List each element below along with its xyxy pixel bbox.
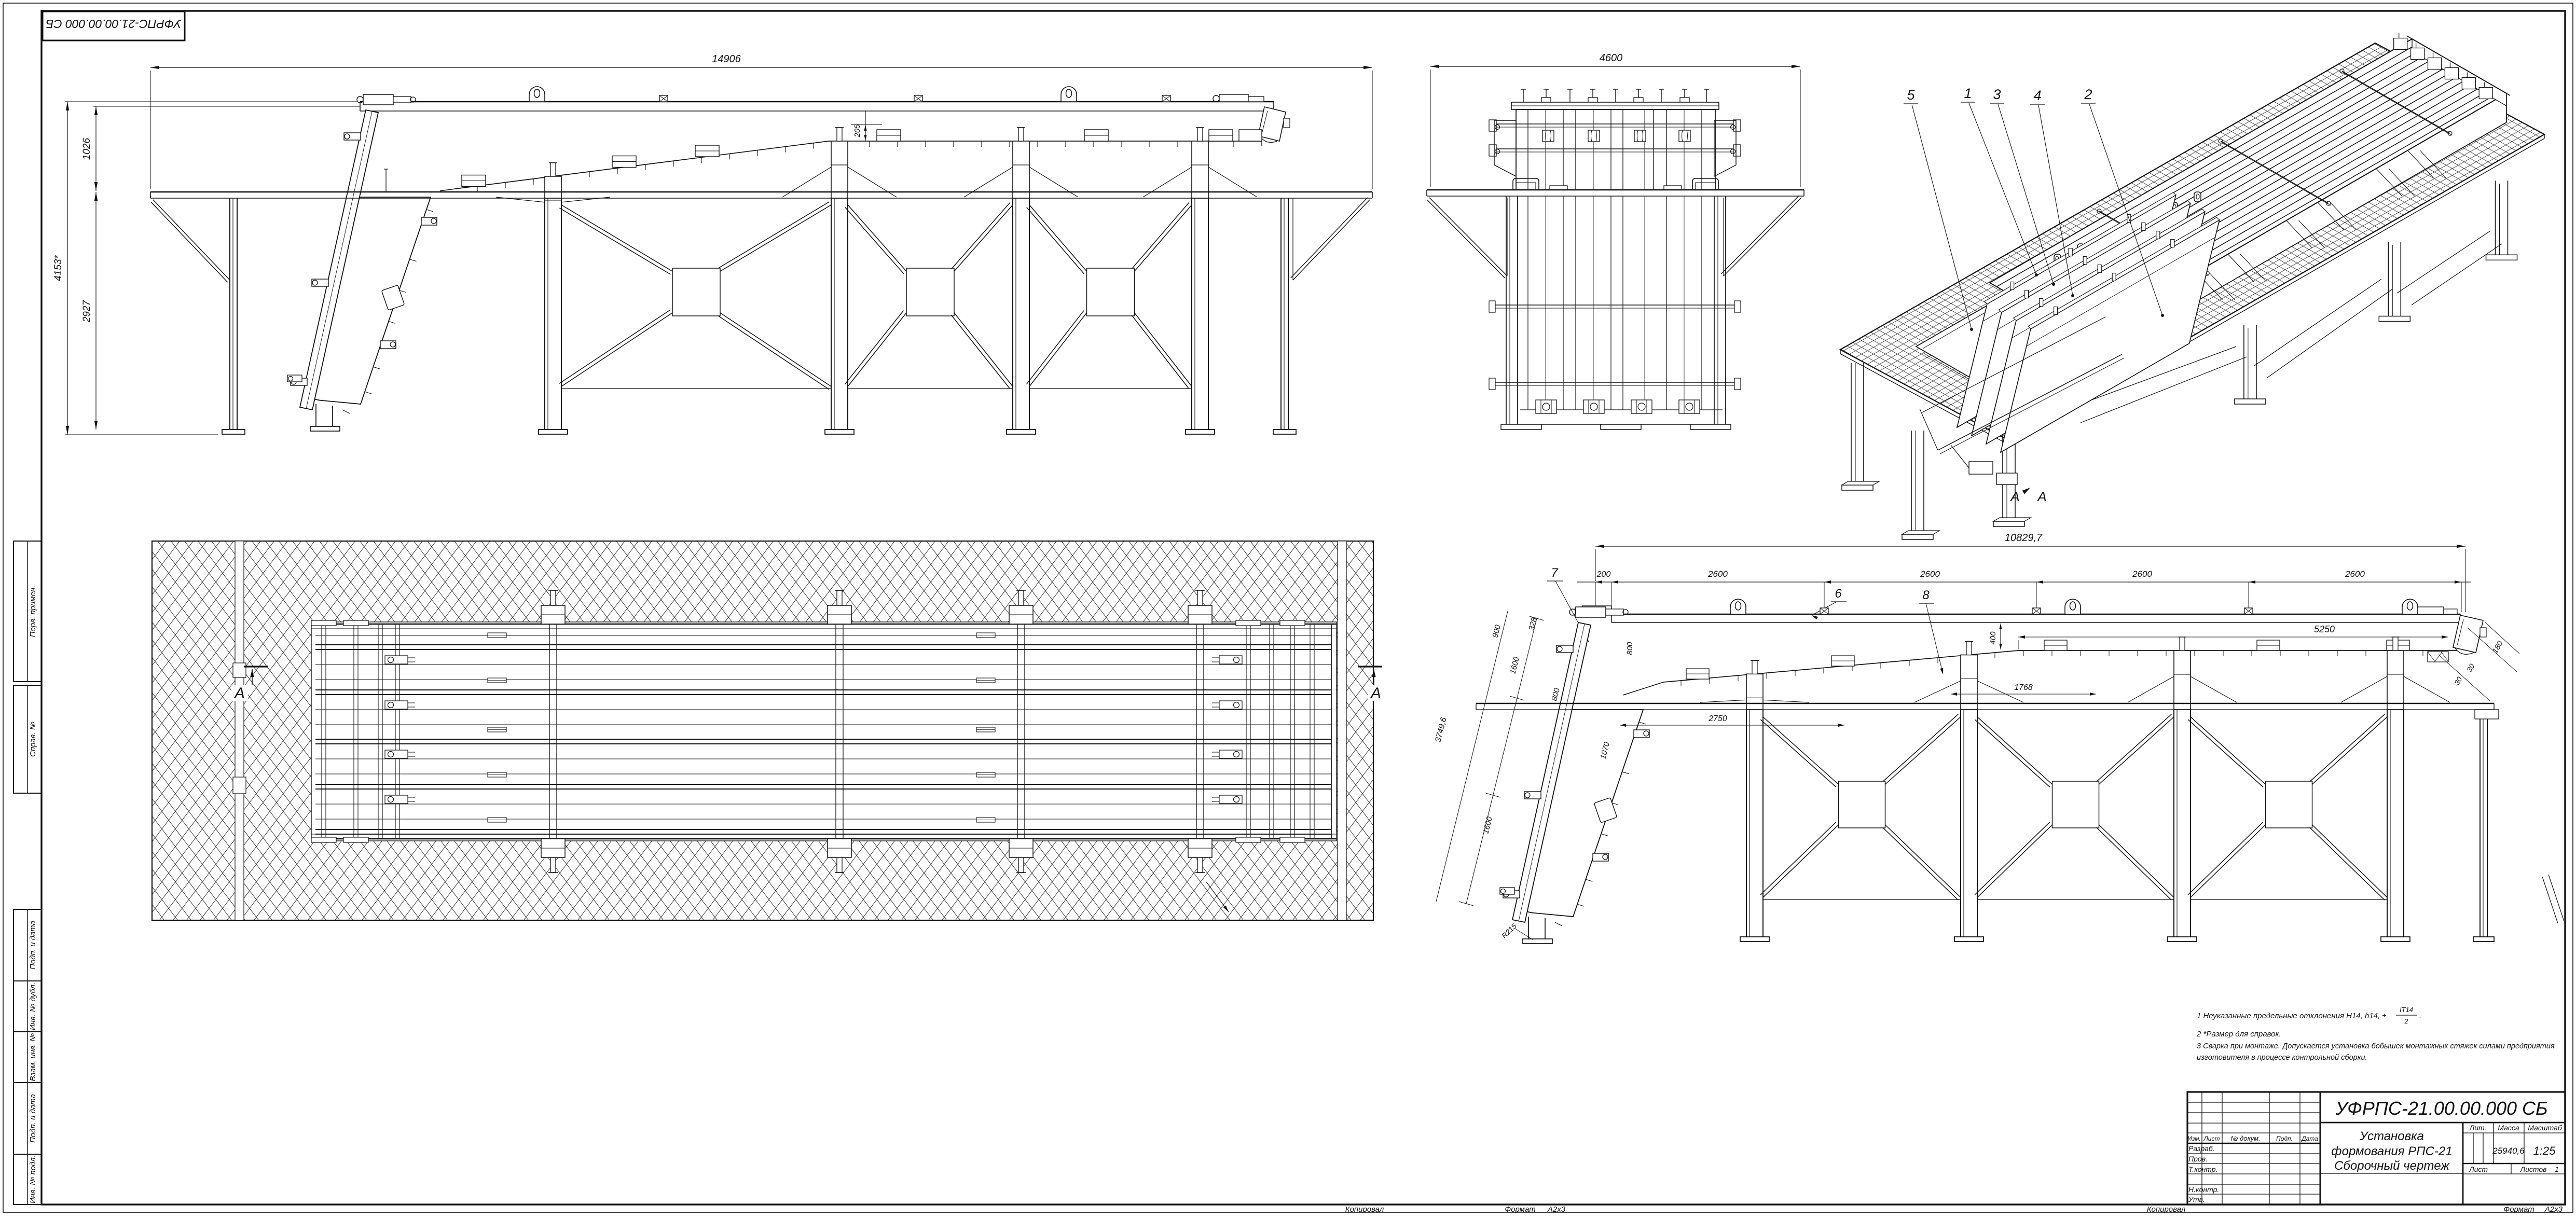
svg-text:Подп. и дата: Подп. и дата xyxy=(29,1094,37,1143)
svg-text:1: 1 xyxy=(2555,1165,2559,1173)
svg-text:2927: 2927 xyxy=(81,299,92,323)
svg-text:1: 1 xyxy=(1964,86,1972,101)
svg-text:Лит.: Лит. xyxy=(2469,1124,2487,1132)
svg-text:1026: 1026 xyxy=(81,137,92,160)
svg-text:14906: 14906 xyxy=(712,53,741,65)
svg-text:изготовителя в процессе контро: изготовителя в процессе контрольной сбор… xyxy=(2197,1054,2367,1062)
svg-text:200: 200 xyxy=(1596,570,1611,579)
svg-text:А: А xyxy=(2009,489,2019,504)
svg-text:2600: 2600 xyxy=(1707,569,1728,579)
svg-text:1768: 1768 xyxy=(2014,683,2033,692)
svg-text:1 Неуказанные предельные откл: 1 Неуказанные предельные отклонения Н14,… xyxy=(2197,1012,2387,1020)
svg-text:5: 5 xyxy=(1907,87,1915,103)
svg-text:Подп. и дата: Подп. и дата xyxy=(29,921,37,970)
svg-text:Инв. № дубл.: Инв. № дубл. xyxy=(29,982,37,1030)
svg-text:Дата: Дата xyxy=(2301,1135,2318,1142)
svg-text:Разраб.: Разраб. xyxy=(2188,1144,2215,1153)
svg-text:А: А xyxy=(2036,489,2046,504)
svg-text:.: . xyxy=(2419,1012,2421,1020)
svg-text:Справ. №: Справ. № xyxy=(29,722,37,757)
svg-text:2: 2 xyxy=(2404,1017,2408,1025)
svg-text:2600: 2600 xyxy=(2132,569,2152,579)
svg-text:№ докум.: № докум. xyxy=(2230,1134,2260,1142)
svg-text:6: 6 xyxy=(1835,587,1842,601)
svg-text:формования РПС-21: формования РПС-21 xyxy=(2331,1144,2452,1158)
svg-text:Т.контр.: Т.контр. xyxy=(2188,1165,2217,1173)
svg-text:1:25: 1:25 xyxy=(2533,1144,2556,1157)
svg-text:4153*: 4153* xyxy=(53,255,64,281)
svg-text:Перв. примен.: Перв. примен. xyxy=(29,586,37,638)
svg-text:Лист: Лист xyxy=(2203,1135,2220,1142)
svg-text:Н.контр.: Н.контр. xyxy=(2188,1185,2219,1194)
svg-text:А2х3: А2х3 xyxy=(2544,1205,2563,1214)
svg-text:4: 4 xyxy=(2033,88,2041,103)
svg-text:3 Сварка при монтаже. Допуск: 3 Сварка при монтаже. Допускается устано… xyxy=(2197,1042,2555,1050)
svg-text:Инв. № подл.: Инв. № подл. xyxy=(29,1155,37,1203)
svg-text:УФРПС-21.00.00.000 СБ: УФРПС-21.00.00.000 СБ xyxy=(46,17,182,31)
svg-text:2750: 2750 xyxy=(1708,714,1727,723)
svg-text:Взам. инв. №: Взам. инв. № xyxy=(29,1033,37,1082)
svg-text:5250: 5250 xyxy=(2314,624,2335,634)
svg-text:2 *Размер для справок.: 2 *Размер для справок. xyxy=(2196,1030,2281,1039)
svg-text:Копировал: Копировал xyxy=(2147,1205,2186,1214)
svg-text:Сборочный чертеж: Сборочный чертеж xyxy=(2334,1159,2450,1173)
svg-text:А: А xyxy=(233,685,245,702)
svg-text:Копировал: Копировал xyxy=(1345,1205,1384,1214)
svg-text:8: 8 xyxy=(1922,588,1930,602)
svg-text:Утв.: Утв. xyxy=(2188,1195,2205,1203)
svg-text:800: 800 xyxy=(1626,642,1634,655)
svg-text:2600: 2600 xyxy=(1920,569,1940,579)
svg-text:2600: 2600 xyxy=(2345,569,2365,579)
svg-text:2: 2 xyxy=(2084,87,2092,102)
svg-text:Изм.: Изм. xyxy=(2187,1135,2201,1142)
svg-text:Формат: Формат xyxy=(1505,1205,1536,1214)
svg-text:10829,7: 10829,7 xyxy=(2005,532,2043,544)
svg-text:3: 3 xyxy=(1993,87,2001,102)
svg-text:Подп.: Подп. xyxy=(2276,1135,2293,1142)
svg-text:А: А xyxy=(1370,685,1381,702)
svg-text:Пров.: Пров. xyxy=(2188,1155,2208,1163)
svg-text:Лист: Лист xyxy=(2469,1165,2488,1173)
svg-text:400: 400 xyxy=(1989,631,1998,645)
svg-text:УФРПС-21.00.00.000 СБ: УФРПС-21.00.00.000 СБ xyxy=(2335,1098,2548,1119)
svg-text:25940,6: 25940,6 xyxy=(2492,1146,2525,1156)
svg-text:205: 205 xyxy=(853,124,862,138)
svg-text:Масштаб: Масштаб xyxy=(2528,1124,2563,1132)
svg-text:Листов: Листов xyxy=(2520,1165,2547,1173)
svg-text:Формат: Формат xyxy=(2503,1205,2534,1214)
svg-text:IT14: IT14 xyxy=(2400,1006,2413,1014)
svg-text:4600: 4600 xyxy=(1600,52,1623,64)
svg-text:Установка: Установка xyxy=(2359,1129,2424,1143)
svg-text:7: 7 xyxy=(1551,566,1559,580)
svg-text:Масса: Масса xyxy=(2498,1124,2519,1132)
svg-text:А2х3: А2х3 xyxy=(1547,1205,1566,1214)
